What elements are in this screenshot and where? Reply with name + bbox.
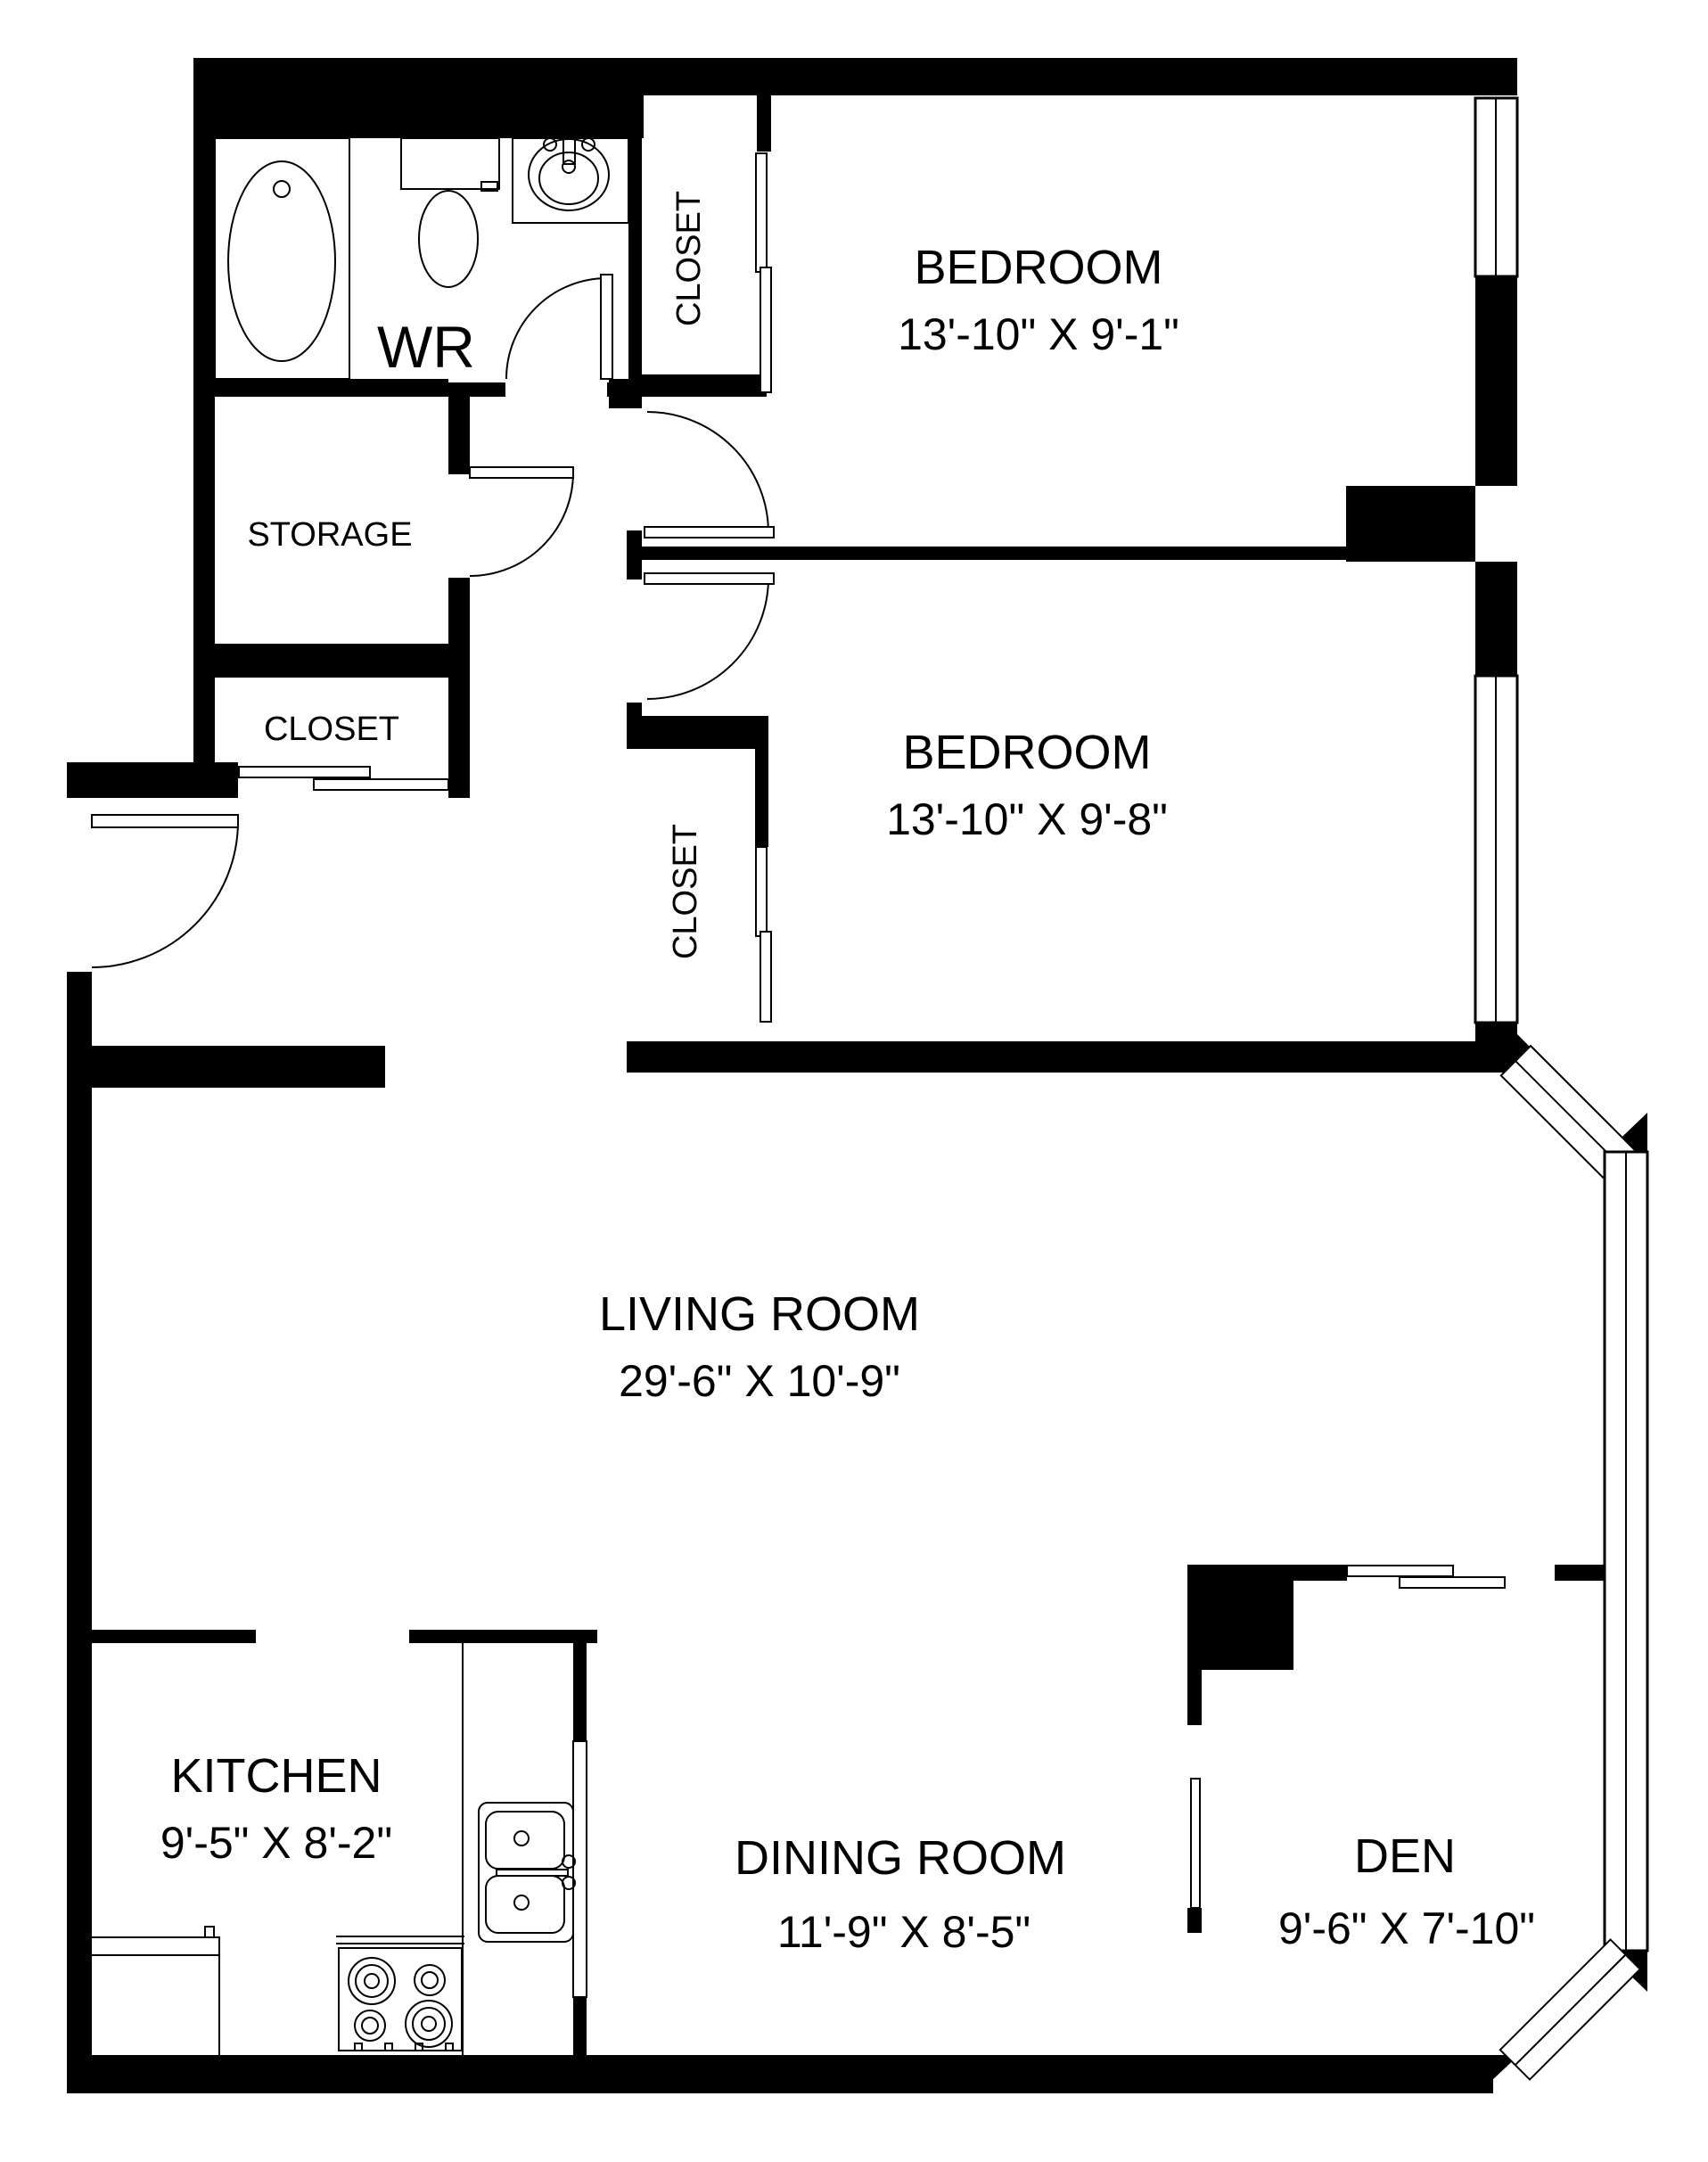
- wall: [573, 1997, 587, 2059]
- stove-burner-icon: [422, 1972, 438, 1988]
- sliding-door-bedroom1-closet: [756, 153, 767, 272]
- stove-burner-icon: [422, 2017, 436, 2031]
- wall: [755, 749, 768, 847]
- room-label-bedroom2-closet: CLOSET: [667, 824, 704, 959]
- kitchen-sink-icon: [486, 1812, 564, 1869]
- kitchen-sink-drain-icon: [514, 1831, 529, 1846]
- wall: [448, 578, 470, 798]
- sliding-door-den-top: [1347, 1566, 1453, 1576]
- door-swing-entry: [92, 821, 238, 967]
- sliding-door-bedroom1-closet: [760, 267, 771, 392]
- wall: [1475, 276, 1517, 486]
- door-leaf-storage: [470, 467, 573, 478]
- wall: [1187, 1670, 1202, 1725]
- floor-plan: WR STORAGE CLOSET CLOSET CLOSET BEDROOM …: [0, 0, 1708, 2162]
- window-mullion: [1515, 1954, 1626, 2065]
- door-leaf-bedroom1: [645, 527, 774, 538]
- wall: [1555, 1565, 1607, 1581]
- kitchen-sink-drain-icon: [514, 1895, 529, 1910]
- room-dims-den: 9'-6" X 7'-10": [1278, 1903, 1535, 1953]
- wall: [642, 547, 1346, 560]
- wall: [193, 58, 644, 138]
- wall: [627, 530, 642, 580]
- sliding-door-hall-closet: [314, 779, 448, 790]
- faucet-icon: [544, 138, 556, 151]
- bathtub-drain-icon: [274, 181, 290, 197]
- door-swing-storage: [470, 473, 573, 576]
- faucet-icon: [562, 160, 575, 173]
- fridge-counter-icon: [205, 1927, 214, 1937]
- wall: [757, 95, 771, 152]
- wall: [1346, 486, 1475, 562]
- sliding-door-hall-closet: [239, 767, 370, 777]
- wall: [1475, 562, 1517, 676]
- wall: [630, 374, 767, 397]
- room-label-hall-closet: CLOSET: [264, 711, 399, 748]
- stove-burner-icon: [356, 1965, 388, 1997]
- kitchen-sink-icon: [497, 1870, 568, 1876]
- room-label-dining: DINING ROOM: [735, 1831, 1066, 1885]
- bathroom-sink-icon: [529, 139, 609, 210]
- room-label-living: LIVING ROOM: [599, 1287, 920, 1341]
- stove-burner-icon: [362, 2018, 378, 2034]
- wall: [1187, 1565, 1293, 1670]
- wall: [409, 1630, 597, 1643]
- sliding-door-bedroom2-closet: [760, 932, 771, 1022]
- wall: [215, 644, 470, 678]
- room-label-wr: WR: [377, 314, 475, 380]
- room-label-storage: STORAGE: [247, 516, 412, 554]
- kitchen-sink-icon: [479, 1803, 573, 1942]
- sliding-door-den-top: [1400, 1577, 1505, 1588]
- door-leaf-bedroom2: [645, 573, 774, 584]
- stove-burner-icon: [355, 2010, 385, 2041]
- door-leaf-wr: [601, 275, 612, 379]
- bathtub-icon: [228, 161, 335, 361]
- wall: [193, 58, 215, 791]
- wall: [67, 762, 238, 798]
- room-label-bedroom2: BEDROOM: [902, 726, 1151, 779]
- room-label-kitchen: KITCHEN: [170, 1749, 382, 1803]
- stove-control-icon: [355, 2043, 362, 2051]
- wall: [67, 1046, 385, 1088]
- wall: [67, 2055, 1493, 2093]
- stove-control-icon: [385, 2043, 392, 2051]
- floor-plan-drawing: WR STORAGE CLOSET CLOSET CLOSET BEDROOM …: [0, 0, 1708, 2162]
- wall: [628, 95, 642, 382]
- door-swing-wr: [506, 278, 607, 379]
- door-swing-bedroom1: [647, 412, 768, 533]
- stove-burner-icon: [365, 1974, 379, 1988]
- room-dims-dining: 11'-9" X 8'-5": [777, 1907, 1031, 1957]
- pocket-door-den: [1191, 1779, 1200, 1908]
- kitchen-sink-icon: [486, 1876, 564, 1933]
- wall: [1293, 1565, 1347, 1581]
- door-swing-bedroom2: [647, 578, 768, 699]
- room-label-bedroom1-closet: CLOSET: [670, 191, 708, 326]
- wall: [627, 716, 768, 749]
- stove-control-icon: [446, 2043, 453, 2051]
- room-label-den: DEN: [1354, 1829, 1456, 1883]
- sliding-door-bedroom2-closet: [756, 847, 767, 936]
- room-dims-bedroom1: 13'-10" X 9'-1": [898, 309, 1179, 359]
- pass-through-kitchen-dining: [573, 1741, 587, 1997]
- stove-burner-icon: [415, 1965, 445, 1995]
- wall: [67, 972, 92, 2093]
- room-label-bedroom1: BEDROOM: [914, 241, 1162, 294]
- wall: [627, 1041, 1517, 1073]
- wall: [573, 1643, 587, 1741]
- room-dims-kitchen: 9'-5" X 8'-2": [160, 1818, 392, 1868]
- bathtub-icon: [215, 138, 349, 379]
- wall: [92, 1630, 256, 1643]
- room-dims-bedroom2: 13'-10" X 9'-8": [886, 794, 1168, 844]
- stove-burner-icon: [413, 2008, 445, 2040]
- wall: [193, 379, 448, 397]
- wall: [1187, 1908, 1202, 1933]
- toilet-icon: [419, 191, 478, 287]
- room-dims-living: 29'-6" X 10'-9": [619, 1356, 900, 1406]
- door-leaf-entry: [92, 815, 238, 827]
